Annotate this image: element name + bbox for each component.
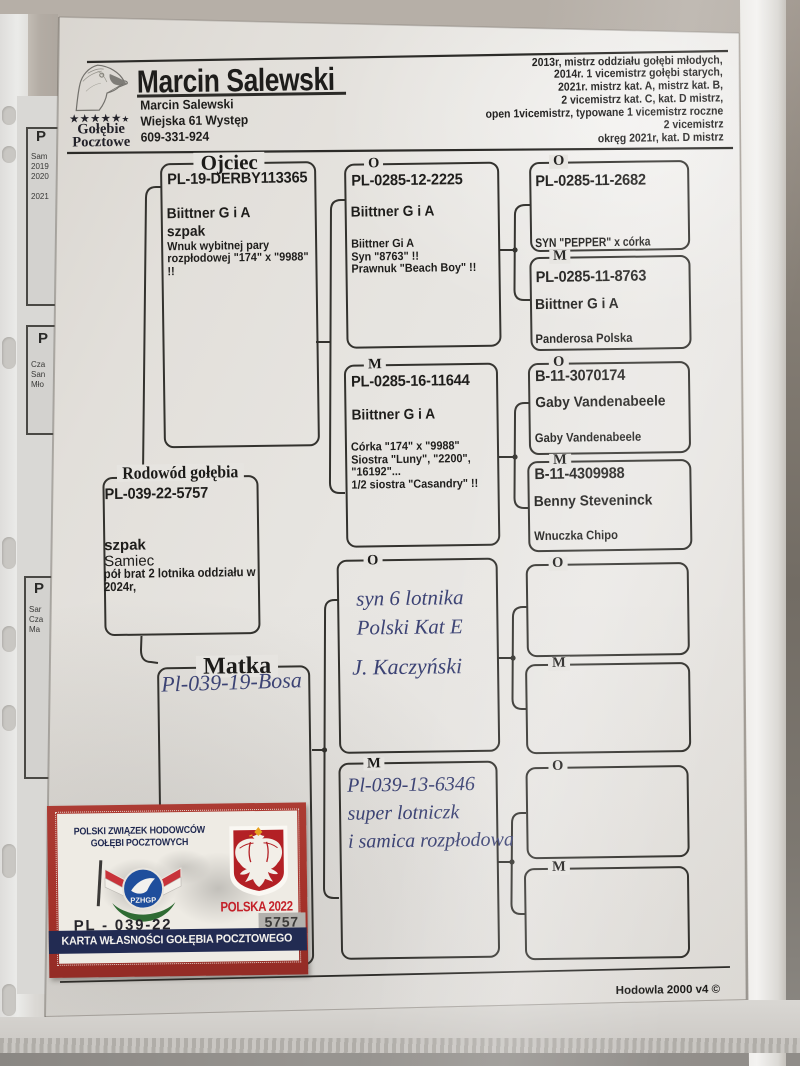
svg-text:PZHGP: PZHGP	[130, 895, 156, 904]
